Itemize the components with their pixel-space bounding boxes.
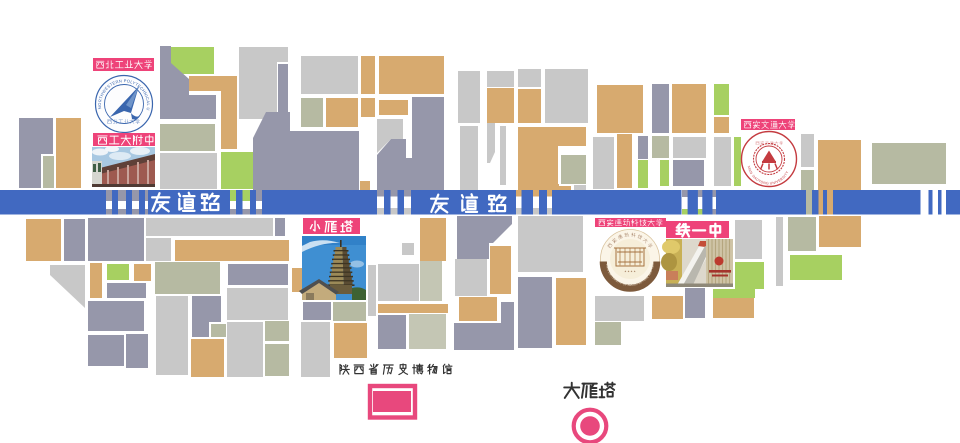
- svg-text:* * * *: * * * *: [625, 270, 636, 275]
